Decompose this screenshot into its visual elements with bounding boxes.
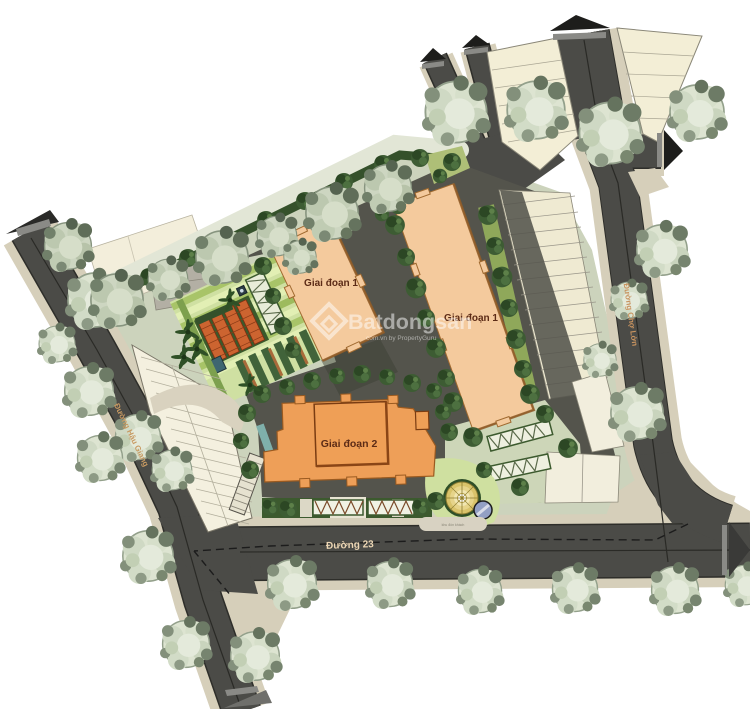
svg-text:Batdongsan: Batdongsan (348, 310, 472, 334)
svg-text:Giai đoạn 2: Giai đoạn 2 (321, 438, 378, 450)
svg-text:khu đón khách: khu đón khách (442, 523, 465, 527)
svg-text:com.vn by PropertyGuru: com.vn by PropertyGuru (366, 335, 437, 342)
svg-text:Đường 23: Đường 23 (326, 539, 374, 552)
svg-text:Giai đoạn 1: Giai đoạn 1 (304, 278, 358, 289)
